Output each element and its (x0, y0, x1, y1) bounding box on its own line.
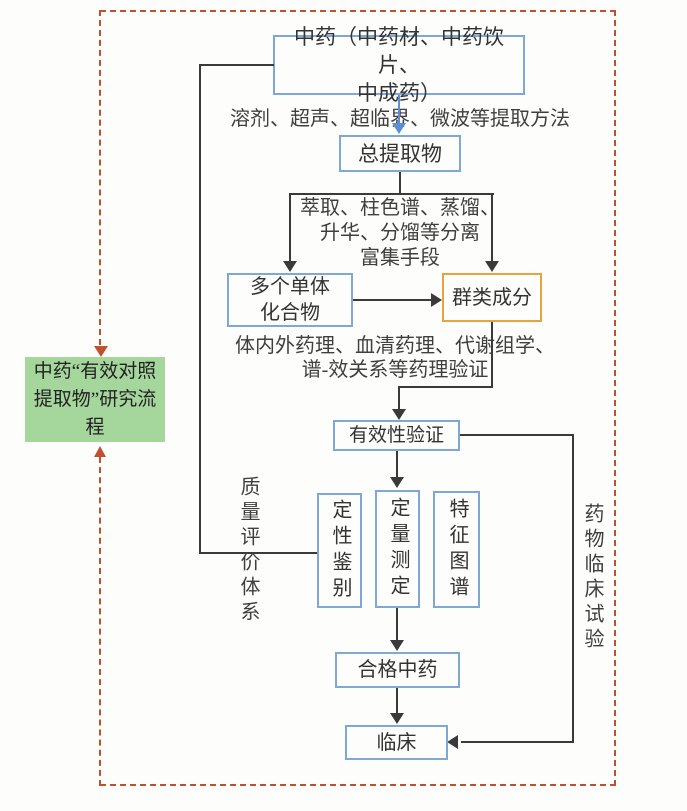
connector-assay-down (396, 608, 398, 641)
annotation-pharmacology: 体内外药理、血清药理、代谢组学、 谱-效关系等药理验证 (210, 334, 580, 382)
connector-right-to-clinic (461, 741, 573, 743)
arrow-qualified-to-clinic-icon (390, 713, 404, 724)
annotation-separation-line2: 升华、分馏等分离 (280, 221, 520, 246)
connector-monomers-to-group (353, 299, 433, 301)
connector-left-top-horizontal (200, 64, 274, 66)
dashed-arrow-up-icon (94, 446, 106, 457)
node-quantitative-assay-label: 定量测定 (375, 497, 420, 601)
connector-right-vertical (572, 434, 574, 743)
dashed-frame-left-bottom (99, 457, 101, 786)
connector-left-vertical (199, 64, 201, 554)
connector-efficacy-down (396, 451, 398, 478)
node-component-group-label: 群类成分 (452, 285, 532, 311)
dashed-frame-left-top (99, 10, 101, 345)
node-total-extract-label: 总提取物 (358, 141, 442, 167)
node-herb-source-line1: 中药（中药材、中药饮片、 (275, 23, 523, 79)
annotation-separation-line3: 富集手段 (280, 246, 520, 271)
connector-herb-to-extract (398, 95, 400, 125)
node-efficacy-validation: 有效性验证 (333, 420, 460, 451)
annotation-pharmacology-line1: 体内外药理、血清药理、代谢组学、 (210, 334, 580, 358)
node-qualified-tcm: 合格中药 (335, 652, 460, 688)
annotation-separation-line1: 萃取、柱色谱、蒸馏、 (280, 196, 520, 221)
node-component-group: 群类成分 (442, 273, 542, 322)
node-total-extract: 总提取物 (339, 135, 461, 172)
annotation-pharmacology-line2: 谱-效关系等药理验证 (210, 358, 580, 382)
connector-group-left (398, 386, 493, 388)
connector-branch-horizontal (289, 193, 494, 195)
arrow-to-efficacy-icon (392, 409, 406, 420)
arrow-assay-to-qualified-icon (390, 640, 404, 651)
connector-group-to-efficacy (398, 386, 400, 410)
node-clinic: 临床 (345, 725, 448, 760)
connector-qualified-down (396, 688, 398, 714)
arrow-herb-to-extract-icon (392, 123, 406, 134)
connector-group-down (491, 322, 493, 388)
node-efficacy-validation-label: 有效性验证 (349, 423, 444, 449)
node-clinic-label: 临床 (377, 730, 417, 756)
node-monomers: 多个单体 化合物 (227, 273, 353, 327)
node-qualitative-id-label: 定性鉴别 (317, 499, 362, 603)
arrow-efficacy-to-assay-icon (390, 477, 404, 488)
arrow-monomers-to-group-icon (431, 293, 442, 307)
annotation-separation: 萃取、柱色谱、蒸馏、 升华、分馏等分离 富集手段 (280, 196, 520, 271)
title-box: 中药“有效对照提取物”研究流程 (25, 357, 165, 442)
arrow-to-clinic-icon (447, 735, 458, 749)
node-qualified-tcm-label: 合格中药 (358, 657, 438, 683)
node-monomers-line2: 化合物 (260, 300, 320, 326)
node-monomers-line1: 多个单体 (250, 274, 330, 300)
annotation-quality-system: 质量评价体系 (234, 476, 263, 636)
node-qualitative-id: 定性鉴别 (317, 493, 362, 608)
annotation-clinical-trial: 药物临床试验 (578, 503, 607, 663)
node-herb-source: 中药（中药材、中药饮片、 中成药） (273, 35, 525, 95)
connector-extract-stem (399, 172, 401, 195)
flowchart-canvas: 中药“有效对照提取物”研究流程 中药（中药材、中药饮片、 中成药） 溶剂、超声、… (0, 0, 687, 811)
node-quantitative-assay: 定量测定 (375, 490, 420, 608)
node-characteristic-chromatogram-label: 特征图谱 (434, 498, 479, 602)
connector-efficacy-right (460, 434, 574, 436)
title-text: 中药“有效对照提取物”研究流程 (31, 358, 159, 442)
node-characteristic-chromatogram: 特征图谱 (433, 491, 480, 608)
dashed-arrow-down-icon (94, 346, 108, 357)
